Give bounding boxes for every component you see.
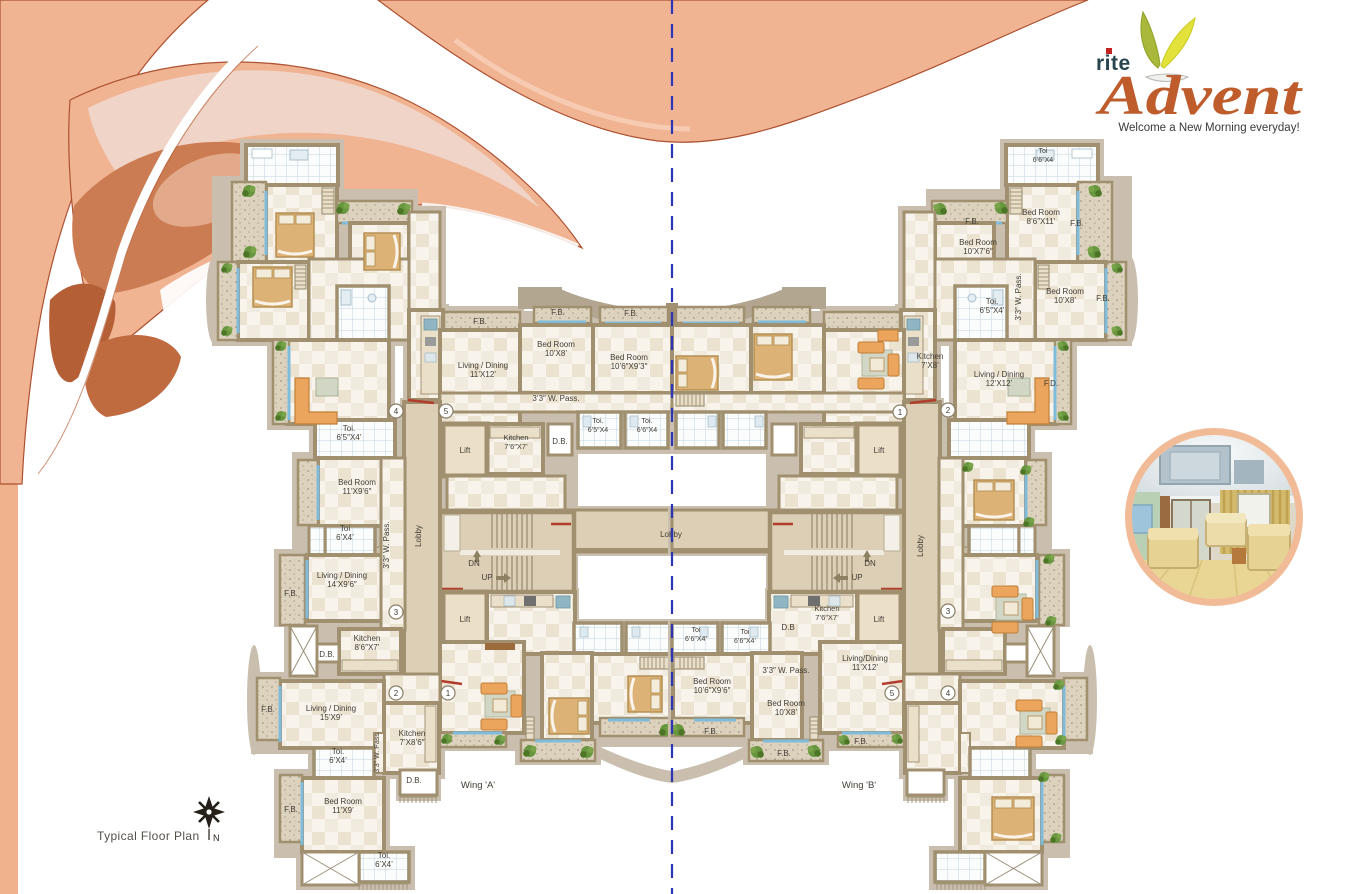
svg-text:Kitchen8’6″X7’: Kitchen8’6″X7’ xyxy=(354,634,381,652)
svg-text:2: 2 xyxy=(946,406,951,415)
svg-text:F.D.: F.D. xyxy=(1044,379,1058,388)
svg-text:F.B.: F.B. xyxy=(1096,294,1110,303)
svg-text:F.B.: F.B. xyxy=(284,589,298,598)
svg-text:F.B.: F.B. xyxy=(854,737,868,746)
svg-text:F.B.: F.B. xyxy=(284,805,298,814)
svg-text:DN: DN xyxy=(468,559,480,568)
svg-text:Lobby: Lobby xyxy=(916,535,925,557)
svg-text:3’3″ W. Pass.: 3’3″ W. Pass. xyxy=(374,731,381,772)
svg-text:D.B: D.B xyxy=(781,623,794,632)
svg-text:D.B.: D.B. xyxy=(319,650,335,659)
svg-text:Advent: Advent xyxy=(1095,65,1303,127)
svg-text:F.B.: F.B. xyxy=(551,308,565,317)
svg-text:1: 1 xyxy=(898,408,903,417)
svg-text:Bed Room10’6″X9’3″: Bed Room10’6″X9’3″ xyxy=(610,353,648,371)
svg-text:Bed Room8’6″X11’: Bed Room8’6″X11’ xyxy=(1022,208,1060,226)
svg-text:5: 5 xyxy=(444,407,449,416)
svg-text:Wing 'A': Wing 'A' xyxy=(461,780,495,791)
svg-text:Kitchen7’6″X7’: Kitchen7’6″X7’ xyxy=(814,604,839,622)
svg-text:F.B.: F.B. xyxy=(1070,219,1084,228)
svg-text:3: 3 xyxy=(394,608,399,617)
svg-text:UP: UP xyxy=(851,573,862,582)
svg-text:Bed Room10’X7’6″: Bed Room10’X7’6″ xyxy=(959,238,997,256)
svg-text:4: 4 xyxy=(946,689,951,698)
svg-text:F.B.: F.B. xyxy=(261,705,275,714)
svg-text:F.B.: F.B. xyxy=(704,727,718,736)
svg-text:Lift: Lift xyxy=(874,615,885,624)
svg-text:F.B.: F.B. xyxy=(624,309,638,318)
svg-text:Bed Room10’6″X9’6″: Bed Room10’6″X9’6″ xyxy=(693,677,731,695)
svg-text:Lift: Lift xyxy=(460,446,471,455)
svg-text:3’3″ W. Pass.: 3’3″ W. Pass. xyxy=(1014,273,1023,320)
svg-text:Welcome a New Morning everyday: Welcome a New Morning everyday! xyxy=(1118,122,1299,134)
svg-text:1: 1 xyxy=(446,689,451,698)
svg-text:5: 5 xyxy=(890,689,895,698)
svg-text:Lift: Lift xyxy=(874,446,885,455)
svg-text:Bed Room11’X9’6″: Bed Room11’X9’6″ xyxy=(338,478,376,496)
svg-text:F.B.: F.B. xyxy=(777,749,791,758)
svg-text:2: 2 xyxy=(394,689,399,698)
svg-text:3: 3 xyxy=(946,607,951,616)
svg-text:F.B.: F.B. xyxy=(965,217,979,226)
svg-text:N: N xyxy=(213,833,220,843)
svg-text:DN: DN xyxy=(864,559,876,568)
svg-text:Lobby: Lobby xyxy=(414,525,423,547)
svg-text:D.B.: D.B. xyxy=(406,776,422,785)
svg-text:Wing 'B': Wing 'B' xyxy=(842,780,876,791)
svg-text:4: 4 xyxy=(394,407,399,416)
svg-text:3’3″ W. Pass.: 3’3″ W. Pass. xyxy=(532,394,579,403)
svg-text:Kitchen7’X8’6″: Kitchen7’X8’6″ xyxy=(399,729,426,747)
svg-text:D.B.: D.B. xyxy=(552,437,568,446)
svg-text:Lift: Lift xyxy=(460,615,471,624)
svg-text:3’3″ W. Pass.: 3’3″ W. Pass. xyxy=(382,521,391,568)
svg-text:Typical Floor Plan: Typical Floor Plan xyxy=(97,829,200,843)
svg-text:Kitchen7’6″X7’: Kitchen7’6″X7’ xyxy=(503,433,528,451)
svg-text:3’3″ W. Pass.: 3’3″ W. Pass. xyxy=(762,666,809,675)
svg-text:UP: UP xyxy=(481,573,492,582)
svg-text:F.B.: F.B. xyxy=(473,317,487,326)
